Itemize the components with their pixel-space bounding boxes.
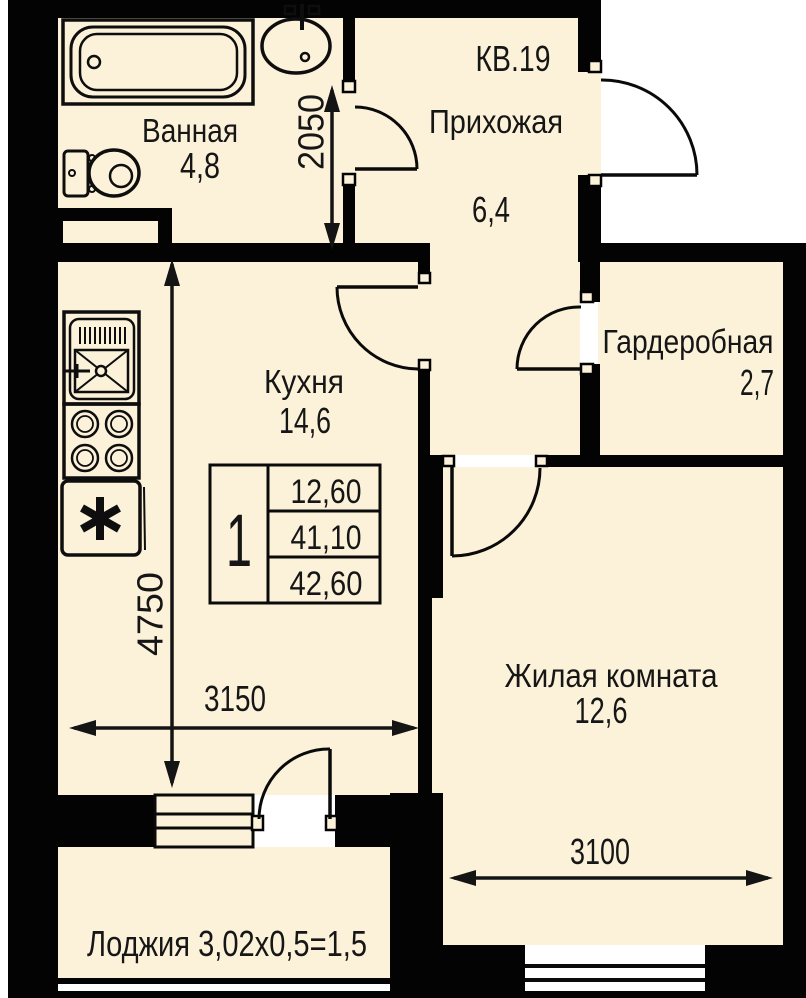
loggia-outer-line — [58, 991, 390, 998]
dim-label-2050: 2050 — [291, 94, 332, 170]
table-living-area: 12,60 — [291, 473, 362, 511]
vent-shaft-hole — [63, 221, 158, 244]
label-hall-name: Прихожая — [429, 103, 563, 140]
dim-label-3100: 3100 — [570, 831, 630, 872]
dim-label-4750: 4750 — [130, 572, 171, 656]
loggia-glass-line — [58, 978, 390, 984]
label-living-name: Жилая комната — [505, 657, 719, 694]
label-bathroom-area: 4,8 — [180, 145, 220, 186]
label-kitchen-area: 14,6 — [279, 400, 331, 441]
corridor-floor — [418, 243, 580, 455]
entry-door-icon — [601, 80, 697, 175]
table-total-area: 42,60 — [290, 565, 363, 603]
label-living-area: 12,6 — [575, 690, 628, 731]
kitchen-window-icon — [155, 795, 253, 847]
apartment-label: КВ.19 — [476, 38, 551, 79]
floor-plan: 2050 4750 3150 3100 КВ.19 Ванная 4,8 При… — [0, 0, 806, 998]
label-kitchen-name: Кухня — [264, 363, 344, 400]
table-area: 41,10 — [291, 519, 362, 557]
label-wardrobe-name: Гардеробная — [603, 323, 774, 360]
label-hall-area: 6,4 — [472, 189, 510, 230]
living-window-icon — [525, 945, 705, 991]
label-wardrobe-area: 2,7 — [740, 362, 774, 403]
label-bathroom-name: Ванная — [142, 112, 238, 149]
label-loggia: Лоджия 3,02x0,5=1,5 — [87, 923, 367, 964]
dim-label-3150: 3150 — [204, 678, 266, 719]
table-unit-number: 1 — [226, 499, 252, 582]
